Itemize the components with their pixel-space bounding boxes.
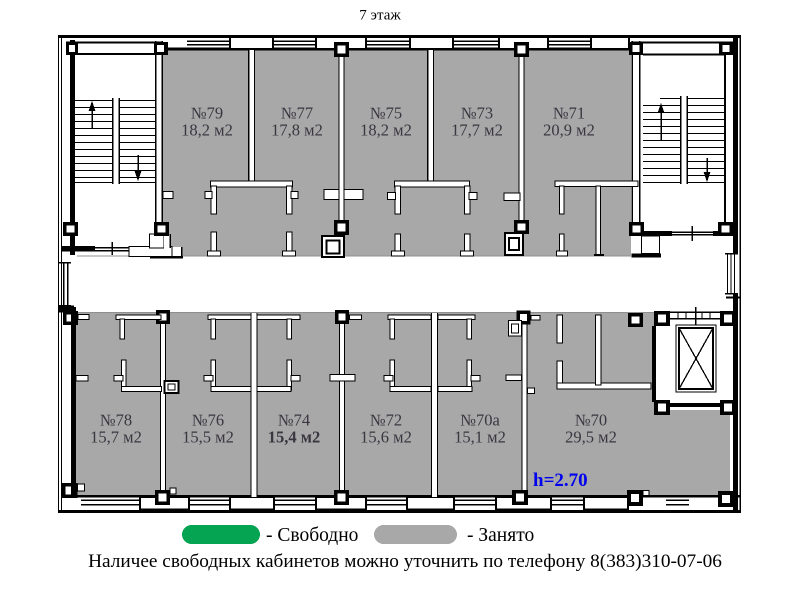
svg-text:15,5 м2: 15,5 м2 <box>182 428 234 447</box>
svg-text:18,2 м2: 18,2 м2 <box>181 121 233 140</box>
svg-text:15,6 м2: 15,6 м2 <box>360 428 412 447</box>
svg-text:17,7 м2: 17,7 м2 <box>451 121 503 140</box>
svg-text:20,9 м2: 20,9 м2 <box>543 121 595 140</box>
svg-text:15,7 м2: 15,7 м2 <box>90 428 142 447</box>
svg-text:17,8 м2: 17,8 м2 <box>271 121 323 140</box>
svg-text:15,4 м2: 15,4 м2 <box>268 428 321 447</box>
svg-text:Наличее свободных кабинетов мо: Наличее свободных кабинетов можно уточни… <box>88 551 722 572</box>
svg-text:h=2.70: h=2.70 <box>533 470 588 491</box>
svg-text:15,1 м2: 15,1 м2 <box>454 428 506 447</box>
svg-text:7 этаж: 7 этаж <box>359 8 401 24</box>
svg-text:- Свободно: - Свободно <box>266 525 358 546</box>
svg-text:18,2 м2: 18,2 м2 <box>360 121 412 140</box>
svg-text:29,5 м2: 29,5 м2 <box>565 428 617 447</box>
svg-text:- Занято: - Занято <box>467 525 534 546</box>
